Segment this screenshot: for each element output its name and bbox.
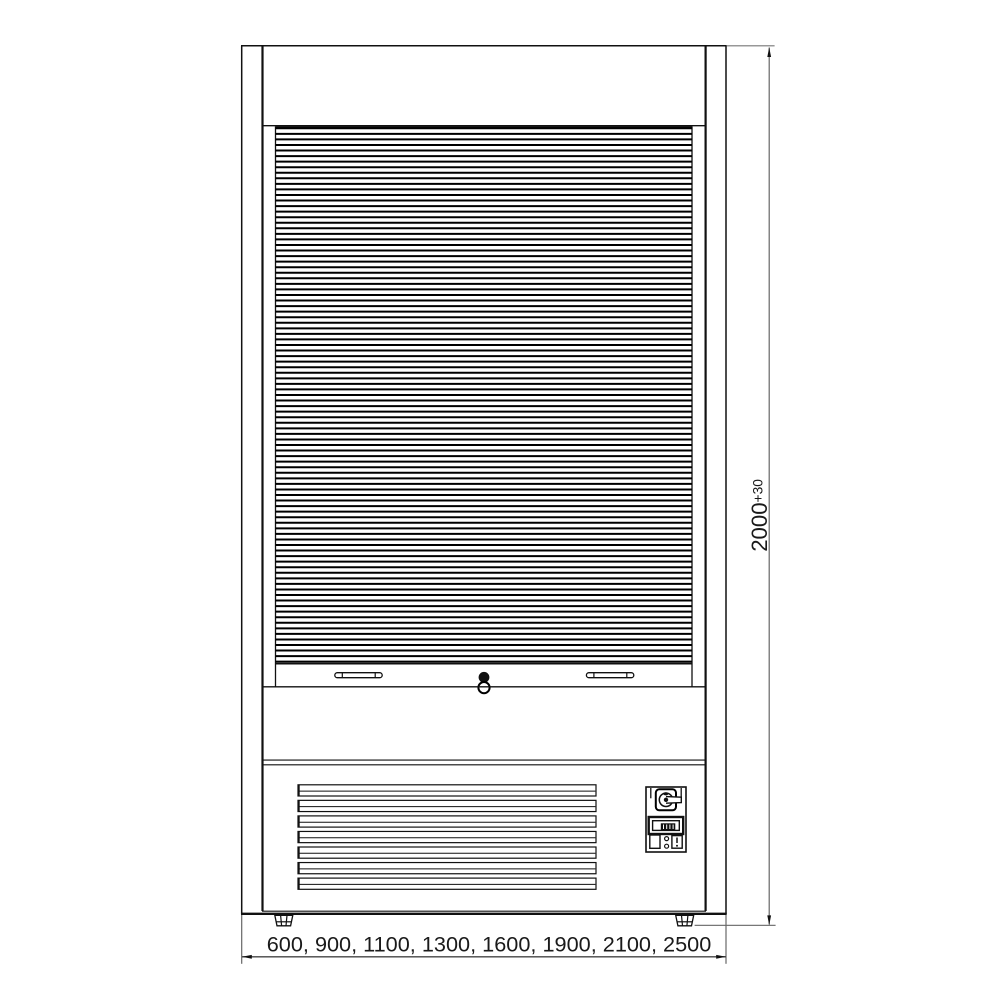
svg-text:2000+30: 2000+30: [747, 479, 772, 552]
svg-text:600, 900, 1100, 1300, 1600, 19: 600, 900, 1100, 1300, 1600, 1900, 2100, …: [267, 931, 712, 956]
